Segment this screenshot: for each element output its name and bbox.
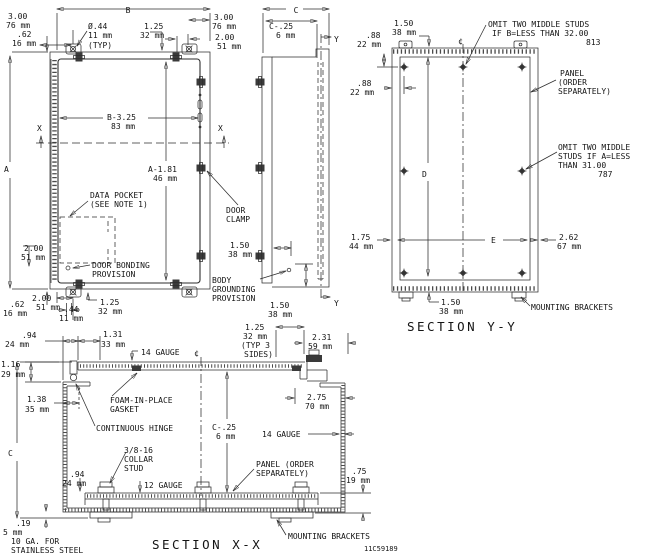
dim-grounding-offset-in: 1.50 [270,301,289,310]
dim-hole-dia-mm: 11 mm [88,31,112,40]
dim-depth-label: C [294,6,299,15]
door-clamp-symbol [171,53,182,62]
dim-bonding-offset-mm: 51 mm [21,253,45,262]
dim-door-overlap-mm: 29 mm [1,370,25,379]
door-clamp-symbol [197,77,206,88]
data-pocket-label-1: DATA POCKET [90,191,143,200]
door-clamp-symbol [197,251,206,262]
door-clamp-symbol [256,77,265,88]
front-view: B 3.00 76 mm .62 16 mm Ø.44 11 mm (TYP) … [3,6,241,323]
dim-panel-depth-mm: 6 mm [216,432,235,441]
section-xx-view: .94 24 mm 1.31 33 mm 14 GAUGE ¢ 1.16 29 … [1,323,398,555]
omit-b-note-2: IF B=LESS THAN 32.00 [492,29,589,38]
body-flange-outline [50,52,210,289]
door-outline [58,59,200,283]
door-clamps [74,53,206,289]
section-x-label-right: X [218,124,223,133]
body-rear-outline [392,48,538,292]
dim-bottom-thickness-mm: 5 mm [3,528,22,537]
dim-panel-depth-in: C-.25 [269,22,293,31]
dim-bottom-edge-mm: 16 mm [3,309,27,318]
dim-hole-dia-typ: (TYP) [88,41,112,50]
dim-hinge-offset-in: .94 [22,331,37,340]
dim-stud-edge-v-in: .88 [366,31,381,40]
dim-depth-label: C [8,449,13,458]
dim-stud-bottom-mm: 38 mm [439,307,463,316]
mounting-brackets-label: MOUNTING BRACKETS [288,532,370,541]
dim-wall-hinge-in: 1.38 [27,395,46,404]
section-y-label-bottom: Y [334,299,339,308]
dim-flange-typ-2: SIDES) [244,350,273,359]
collar-stud-label-2: COLLAR [124,455,153,464]
stud-symbol [400,269,409,278]
dim-bracket-left-in: 1.75 [351,233,370,242]
dim-bottom-edge-in: .62 [10,300,25,309]
dim-clamp-offset-mm: 59 mm [308,342,332,351]
dim-stud-edge-h-mm: 22 mm [350,88,374,97]
dim-top-edge-mm: 16 mm [12,39,36,48]
dim-clamp-wall-in: 2.75 [307,393,326,402]
dim-stud-top-mm: 38 mm [392,28,416,37]
foam-gasket-label-1: FOAM-IN-PLACE [110,396,173,405]
dim-inner-width-mm: 83 mm [111,122,135,131]
dim-bracket-left-mm: 44 mm [349,242,373,251]
body-section [63,382,345,512]
dim-stud-height-mm: 24 mm [62,479,86,488]
dim-stud-edge-h-in: .88 [357,79,372,88]
omit-a-note-3: THAN 31.00 [558,161,606,170]
gauge-panel-label: 12 GAUGE [144,481,183,490]
dim-bracket-right-mm: 67 mm [557,242,581,251]
dim-flange-typ-1: (TYP 3 [241,341,270,350]
mounting-hole [70,289,77,296]
dim-clamp-offset-in: 1.25 [144,22,163,31]
dim-panel-depth-in: C-.25 [212,423,236,432]
door-clamp-label-1: DOOR [226,206,245,215]
mounting-hole [186,46,193,53]
enclosure-drawing: B 3.00 76 mm .62 16 mm Ø.44 11 mm (TYP) … [0,0,649,556]
dim-bottom-thickness-in: .19 [16,519,31,528]
dim-flange-mm: 32 mm [243,332,267,341]
dim-top-right-hole-mm: 51 mm [217,42,241,51]
dim-panel-depth-mm: 6 mm [276,31,295,40]
collar-stud-label-3: STUD [124,464,143,473]
dim-bottom-slot-mm: 11 mm [59,314,83,323]
collar-stud-label-1: 3/8-16 [124,446,153,455]
panel-outline [400,57,530,280]
dim-bonding-offset-in: 2.00 [24,244,43,253]
gauge-door-label: 14 GAUGE [141,348,180,357]
stainless-note-2: STAINLESS STEEL [11,546,83,555]
dim-panel-standoff-in: .75 [352,467,367,476]
collar-studs [98,482,309,510]
mounting-bracket-feet [399,292,526,301]
dim-clamp-space-mm: 38 mm [228,250,252,259]
dim-bottom-clamp-mm: 32 mm [98,307,122,316]
mounting-brackets-section [90,512,313,522]
body-edge-outline [272,49,329,287]
door-clamp-symbol [197,163,206,174]
door-clamp-symbol [171,280,182,289]
section-yy-title: SECTION Y-Y [407,319,517,334]
dim-top-edge-in: .62 [17,30,32,39]
dim-bottom-clamp-in: 1.25 [100,298,119,307]
data-pocket-label-2: (SEE NOTE 1) [90,200,148,209]
panel-order-label-2: SEPARATELY) [256,469,309,478]
body-grounding-label-2: GROUNDING [212,285,256,294]
foam-gasket-label-2: GASKET [110,405,139,414]
dim-d-label: D [422,170,427,179]
panel-note-1: PANEL [560,69,584,78]
dim-hinge-gasket-mm: 33 mm [101,340,125,349]
door-clamp-label-2: CLAMP [226,215,250,224]
panel-note-2: (ORDER [558,78,587,87]
centerline-symbol: ¢ [458,37,463,46]
mounting-hole [186,289,193,296]
mounting-brackets-label: MOUNTING BRACKETS [531,303,613,312]
door-clamp-section [306,355,322,362]
gasket-section [132,366,141,372]
dim-bottom-offset-mm: 51 mm [36,303,60,312]
dim-stud-bottom-in: 1.50 [441,298,460,307]
omit-a-note-2: STUDS IF A=LESS [558,152,630,161]
omit-a-note-4: 787 [598,170,613,179]
stud-symbol [518,63,527,72]
door-bonding-provision [66,265,90,270]
panel-order-label-1: PANEL (ORDER [256,460,314,469]
dim-clamp-wall-mm: 70 mm [305,402,329,411]
dim-wall-hinge-mm: 35 mm [25,405,49,414]
dim-door-overlap-in: 1.16 [1,360,20,369]
dim-top-offset-in: 3.00 [8,12,27,21]
section-x-label-left: X [37,124,42,133]
stud-symbol [400,63,409,72]
section-yy-view: 1.50 38 mm ¢ OMIT TWO MIDDLE STUDS IF B=… [349,19,630,334]
body-grounding-stud [287,268,291,272]
dim-bottom-slot-in: .44 [64,305,79,314]
stud-symbol [518,167,527,176]
dim-grounding-offset-mm: 38 mm [268,310,292,319]
door-bonding-label-2: PROVISION [92,270,136,279]
side-view: C C-.25 6 mm Y DOOR CLAMP 1.50 38 mm BOD… [207,6,339,319]
stud-symbol [400,167,409,176]
body-grounding-label-1: BODY [212,276,231,285]
dim-bracket-right-in: 2.62 [559,233,578,242]
dim-hinge-offset-mm: 24 mm [5,340,29,349]
dim-clamp-offset-mm: 32 mm [140,31,164,40]
dim-stud-edge-v-mm: 22 mm [357,40,381,49]
dim-clamp-space-in: 1.50 [230,241,249,250]
dim-inner-height-mm: 46 mm [153,174,177,183]
dim-overall-height: A [4,165,9,174]
dim-stud-height-in: .94 [70,470,85,479]
mounting-ears [66,44,197,297]
section-y-cut-line [321,34,331,300]
continuous-hinge-symbol [70,361,77,374]
gauge-body-label: 14 GAUGE [262,430,301,439]
dim-clamp-offset-in: 2.31 [312,333,331,342]
dim-bottom-offset-in: 2.00 [32,294,51,303]
dim-hole-dia-in: Ø.44 [88,21,107,31]
data-pocket [60,201,115,263]
dim-top-offset-mm: 76 mm [6,21,30,30]
dim-inner-width-in: B-3.25 [107,113,136,122]
dim-top-right-hole-in: 2.00 [215,33,234,42]
door-clamp-symbol [256,251,265,262]
stainless-note-1: 10 GA. FOR [11,537,59,546]
drawing-canvas: B 3.00 76 mm .62 16 mm Ø.44 11 mm (TYP) … [0,0,649,556]
dim-overall-width: B [126,6,131,15]
section-y-label-top: Y [334,35,339,44]
omit-a-note-1: OMIT TWO MIDDLE [558,143,630,152]
dim-stud-top-in: 1.50 [394,19,413,28]
omit-b-note-3: 813 [586,38,601,47]
dim-inner-height-in: A-1.81 [148,165,177,174]
hinge-barrel [70,374,76,380]
section-xx-title: SECTION X-X [152,537,262,552]
door-bonding-label-1: DOOR BONDING [92,261,150,270]
dim-top-right-offset-in: 3.00 [214,13,233,22]
door-clamp-symbol [256,163,265,174]
mounting-hole [70,46,77,53]
dim-panel-standoff-mm: 19 mm [346,476,370,485]
body-grounding-label-3: PROVISION [212,294,256,303]
omit-b-note-1: OMIT TWO MIDDLE STUDS [488,20,589,29]
dim-hinge-gasket-in: 1.31 [103,330,122,339]
gasket-section [292,366,301,372]
stud-symbol [518,269,527,278]
dim-e-label: E [491,236,496,245]
dim-flange-in: 1.25 [245,323,264,332]
continuous-hinge-label: CONTINUOUS HINGE [96,424,173,433]
drawing-number: 11C59189 [364,545,398,553]
dim-top-right-offset-mm: 76 mm [212,22,236,31]
centerline-symbol: ¢ [194,349,199,358]
panel-note-3: SEPARATELY) [558,87,611,96]
